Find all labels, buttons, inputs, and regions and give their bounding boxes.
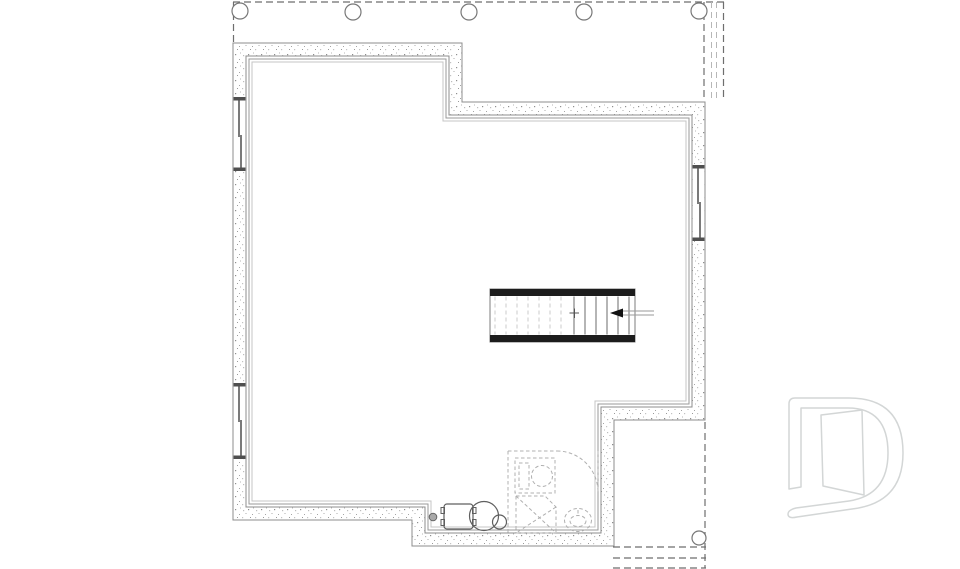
deck-post [576, 4, 592, 20]
window-jamb [234, 383, 246, 387]
logo-door-shape [821, 410, 864, 495]
logo-letter-d-outline [788, 398, 903, 518]
window-jamb [693, 238, 705, 242]
vanity-backsplash [519, 463, 529, 489]
future-bathroom-dashed [508, 451, 598, 533]
deck-post [345, 4, 361, 20]
stair-enclosure [490, 289, 635, 342]
vanity-sink-bowl [532, 466, 553, 487]
mechanical-fixtures [429, 502, 506, 531]
furnace [444, 504, 473, 529]
window-jamb [234, 97, 246, 101]
basement-floor-plan [0, 0, 960, 569]
toilet-bowl-inner [570, 516, 586, 527]
stair-wall-bottom [490, 335, 635, 342]
deck-post [691, 3, 707, 19]
window-right [693, 165, 705, 241]
window-jamb [234, 168, 246, 172]
window-left-upper [234, 97, 246, 171]
under-deck-dashed [613, 422, 706, 568]
deck-post [692, 531, 706, 545]
deck-post-lower [692, 531, 706, 545]
window-left-lower [234, 383, 246, 459]
bathroom-door-swing [557, 451, 598, 492]
deck-posts [232, 3, 707, 20]
window-jamb [693, 165, 705, 169]
builder-logo [788, 398, 903, 518]
floor-drain [429, 513, 437, 521]
staircase [490, 289, 654, 342]
window-jamb [234, 456, 246, 460]
deck-post [232, 3, 248, 19]
stair-wall-top [490, 289, 635, 296]
deck-post [461, 4, 477, 20]
